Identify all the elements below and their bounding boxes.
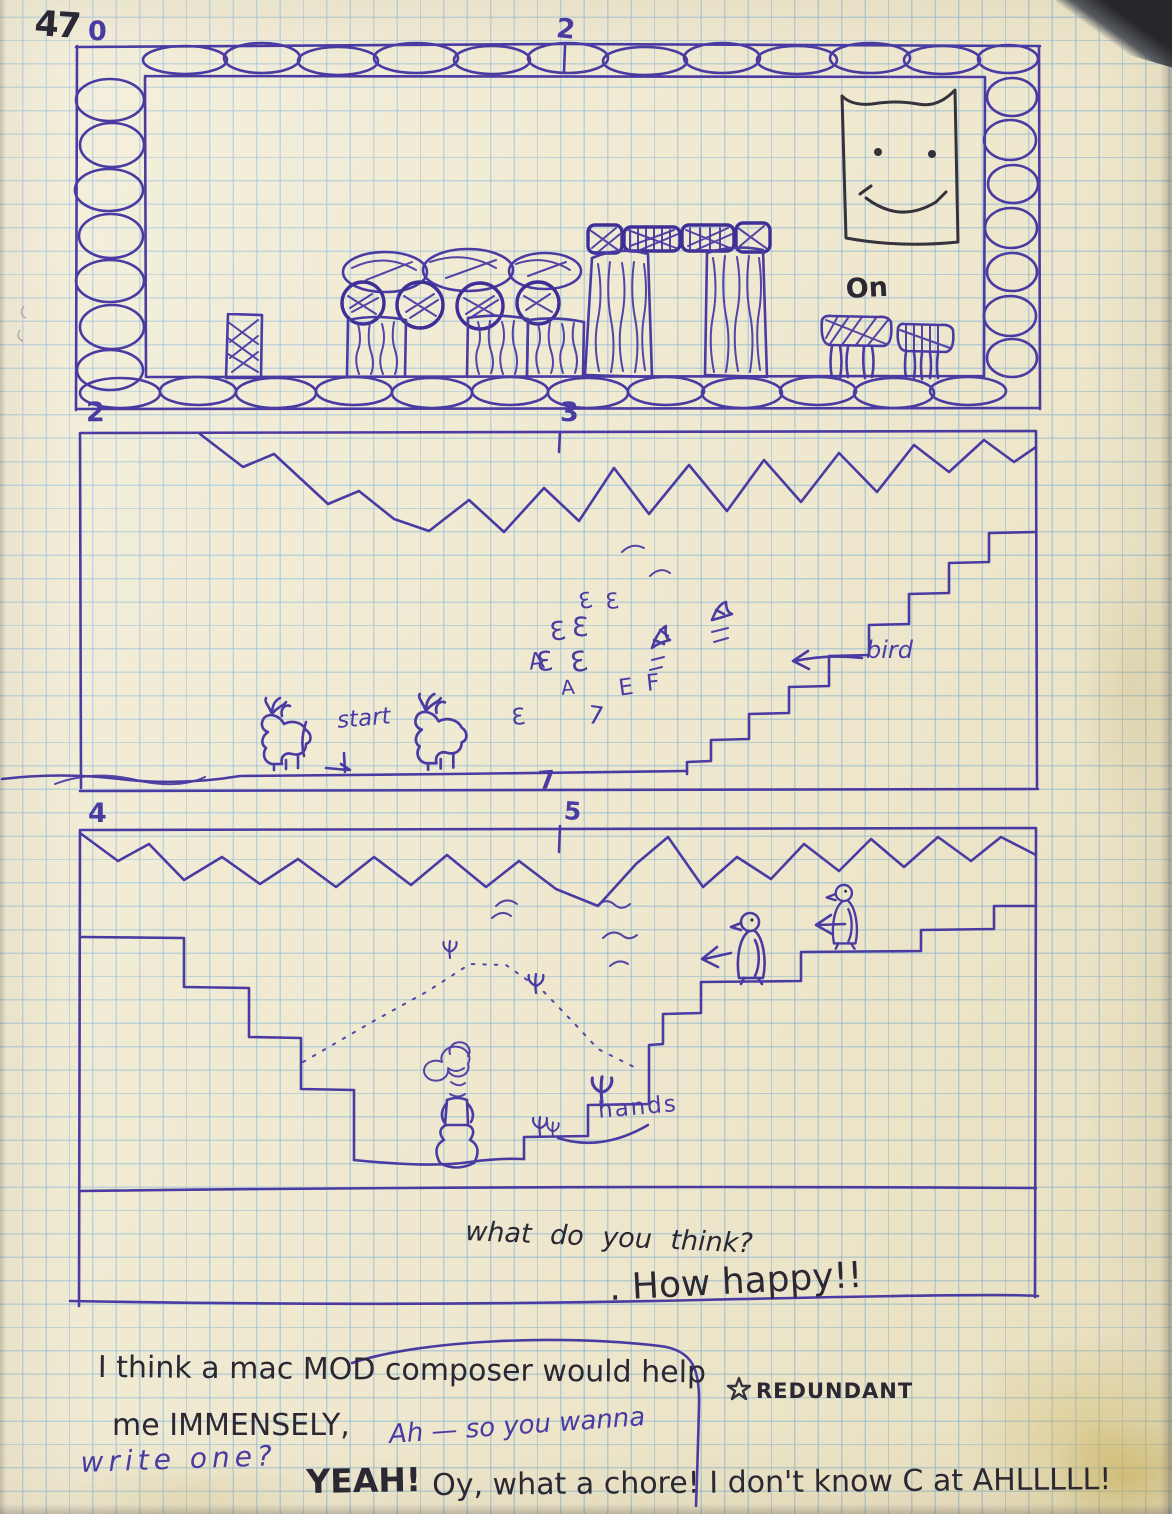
mountain-level <box>2 431 1038 791</box>
stone-border <box>75 43 1038 408</box>
mountain-ridge <box>200 434 1036 532</box>
top-room-level <box>75 43 1040 852</box>
penguin-doodle <box>731 913 765 984</box>
deer-doodle <box>415 694 466 770</box>
desert-level <box>70 828 1038 1306</box>
scan-edge-shadow <box>0 0 6 1514</box>
cactus-doodle <box>592 1077 612 1102</box>
small-tables <box>822 316 954 379</box>
scan-edge-shadow <box>0 1504 1172 1514</box>
notebook-page: 47 0 2 2 3 7 5 4 On bird start hands 3 3… <box>0 0 1172 1514</box>
plant-doodles <box>622 546 732 670</box>
bird-arrow <box>793 651 862 669</box>
hands-pointer <box>558 1125 648 1143</box>
scribble-doodles <box>492 900 637 966</box>
stonehenge-structure <box>342 249 584 376</box>
scan-edge-shadow <box>1160 0 1172 1514</box>
staircase-right <box>524 906 1036 1159</box>
twin-pillar-structure <box>585 223 770 377</box>
statue-doodle <box>424 1042 477 1167</box>
cactus-doodle <box>443 941 456 958</box>
cactus-doodle <box>547 1122 558 1137</box>
cactus-doodle <box>529 974 544 993</box>
notes-bracket <box>352 1340 699 1506</box>
staircase-left <box>80 937 354 1160</box>
dotted-path <box>303 964 634 1067</box>
mountain-ridge <box>80 833 1036 906</box>
level-sketch-drawing <box>0 0 1172 1514</box>
start-arrow <box>302 722 350 772</box>
cat-face-doodle <box>842 90 958 244</box>
staircase-right <box>687 532 1036 774</box>
lone-hatched-pillar <box>226 314 262 378</box>
penguin-doodle <box>827 885 857 949</box>
cactus-doodle <box>533 1117 547 1135</box>
penguin-arrows <box>702 915 845 967</box>
